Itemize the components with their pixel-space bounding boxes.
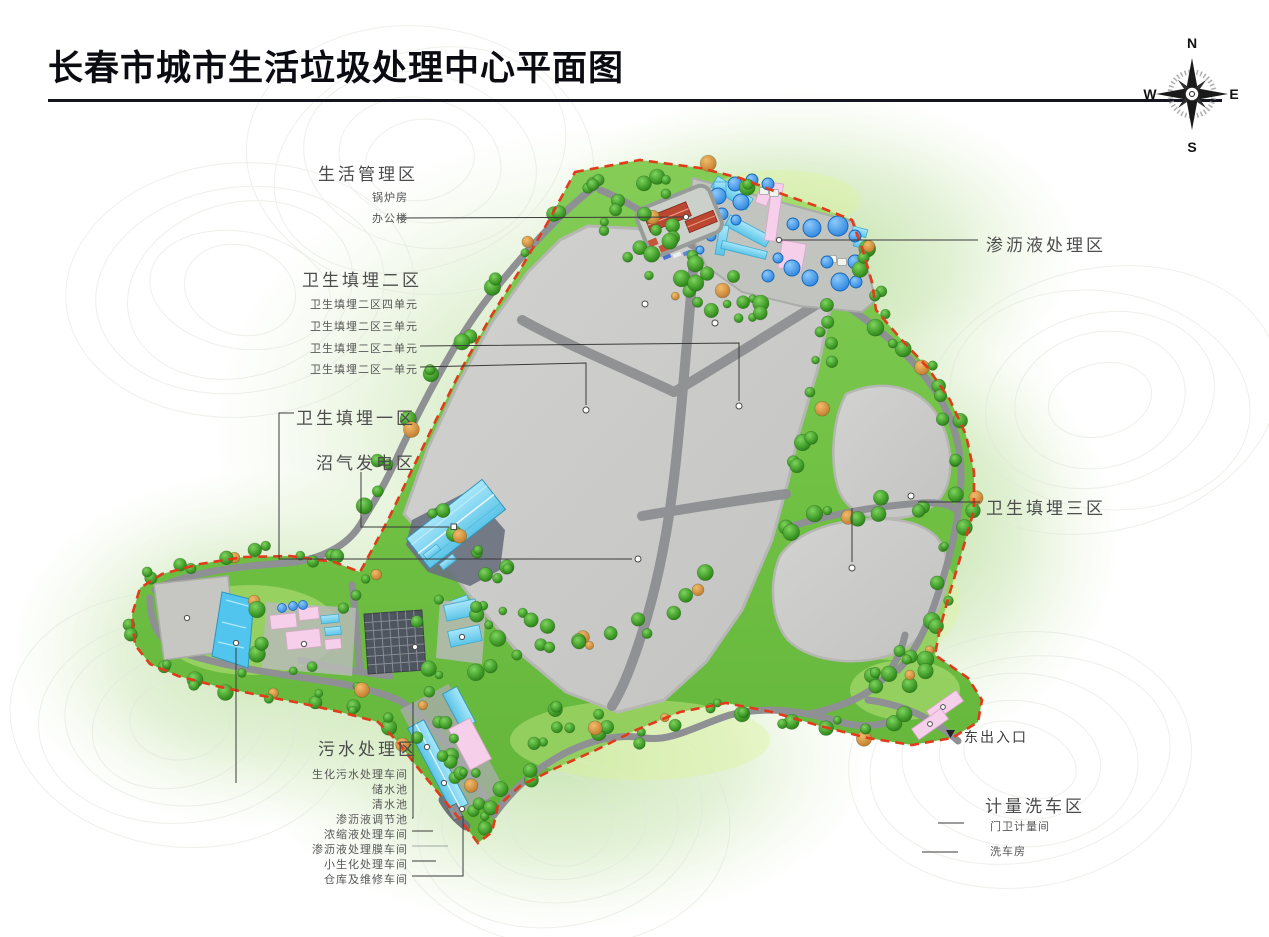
- label-landfill-zone1: 卫生填埋一区: [296, 404, 416, 429]
- label-storage-pool: 储水池: [295, 781, 408, 797]
- label-zone2-unit1: 卫生填埋二区一单元: [300, 361, 418, 377]
- label-clean-pool: 清水池: [295, 796, 408, 812]
- label-east-entrance: 东出入口: [964, 727, 1028, 747]
- label-gate-weigh-room: 门卫计量间: [990, 818, 1050, 834]
- label-small-biochem-workshop: 小生化处理车间: [295, 856, 408, 872]
- label-zone2-unit2: 卫生填埋二区二单元: [300, 340, 418, 356]
- label-zone2-unit3: 卫生填埋二区三单元: [300, 318, 418, 334]
- compass-south-label: S: [1187, 139, 1196, 155]
- site-plan-page: 长春市城市生活垃圾处理中心平面图 N S W E 生活管理区 锅炉房 办公楼 卫…: [0, 0, 1269, 937]
- compass-rose-icon: N S W E: [1142, 30, 1242, 156]
- label-concentrate-workshop: 浓缩液处理车间: [295, 826, 408, 842]
- label-warehouse-workshop: 仓库及维修车间: [295, 871, 408, 887]
- label-sewage-area: 污水处理区: [318, 735, 418, 760]
- label-leachate-area: 渗沥液处理区: [986, 231, 1106, 256]
- label-biogas-area: 沼气发电区: [316, 449, 416, 474]
- compass-north-label: N: [1187, 35, 1197, 51]
- label-office-building: 办公楼: [330, 210, 408, 226]
- label-weighing-carwash-area: 计量洗车区: [985, 792, 1085, 817]
- label-biochem-workshop: 生化污水处理车间: [295, 766, 408, 782]
- label-landfill-zone2: 卫生填埋二区: [302, 266, 422, 291]
- label-membrane-workshop: 渗沥液处理膜车间: [295, 841, 408, 857]
- label-living-management-area: 生活管理区: [318, 160, 418, 185]
- compass-west-label: W: [1143, 86, 1157, 102]
- page-title: 长春市城市生活垃圾处理中心平面图: [48, 40, 624, 91]
- label-boiler-house: 锅炉房: [330, 189, 408, 205]
- compass-east-label: E: [1229, 86, 1238, 102]
- label-zone2-unit4: 卫生填埋二区四单元: [300, 296, 418, 312]
- label-regulating-pool: 渗沥液调节池: [295, 811, 408, 827]
- label-carwash-room: 洗车房: [990, 843, 1026, 859]
- label-landfill-zone3: 卫生填埋三区: [986, 494, 1106, 519]
- title-rule: [48, 99, 1222, 102]
